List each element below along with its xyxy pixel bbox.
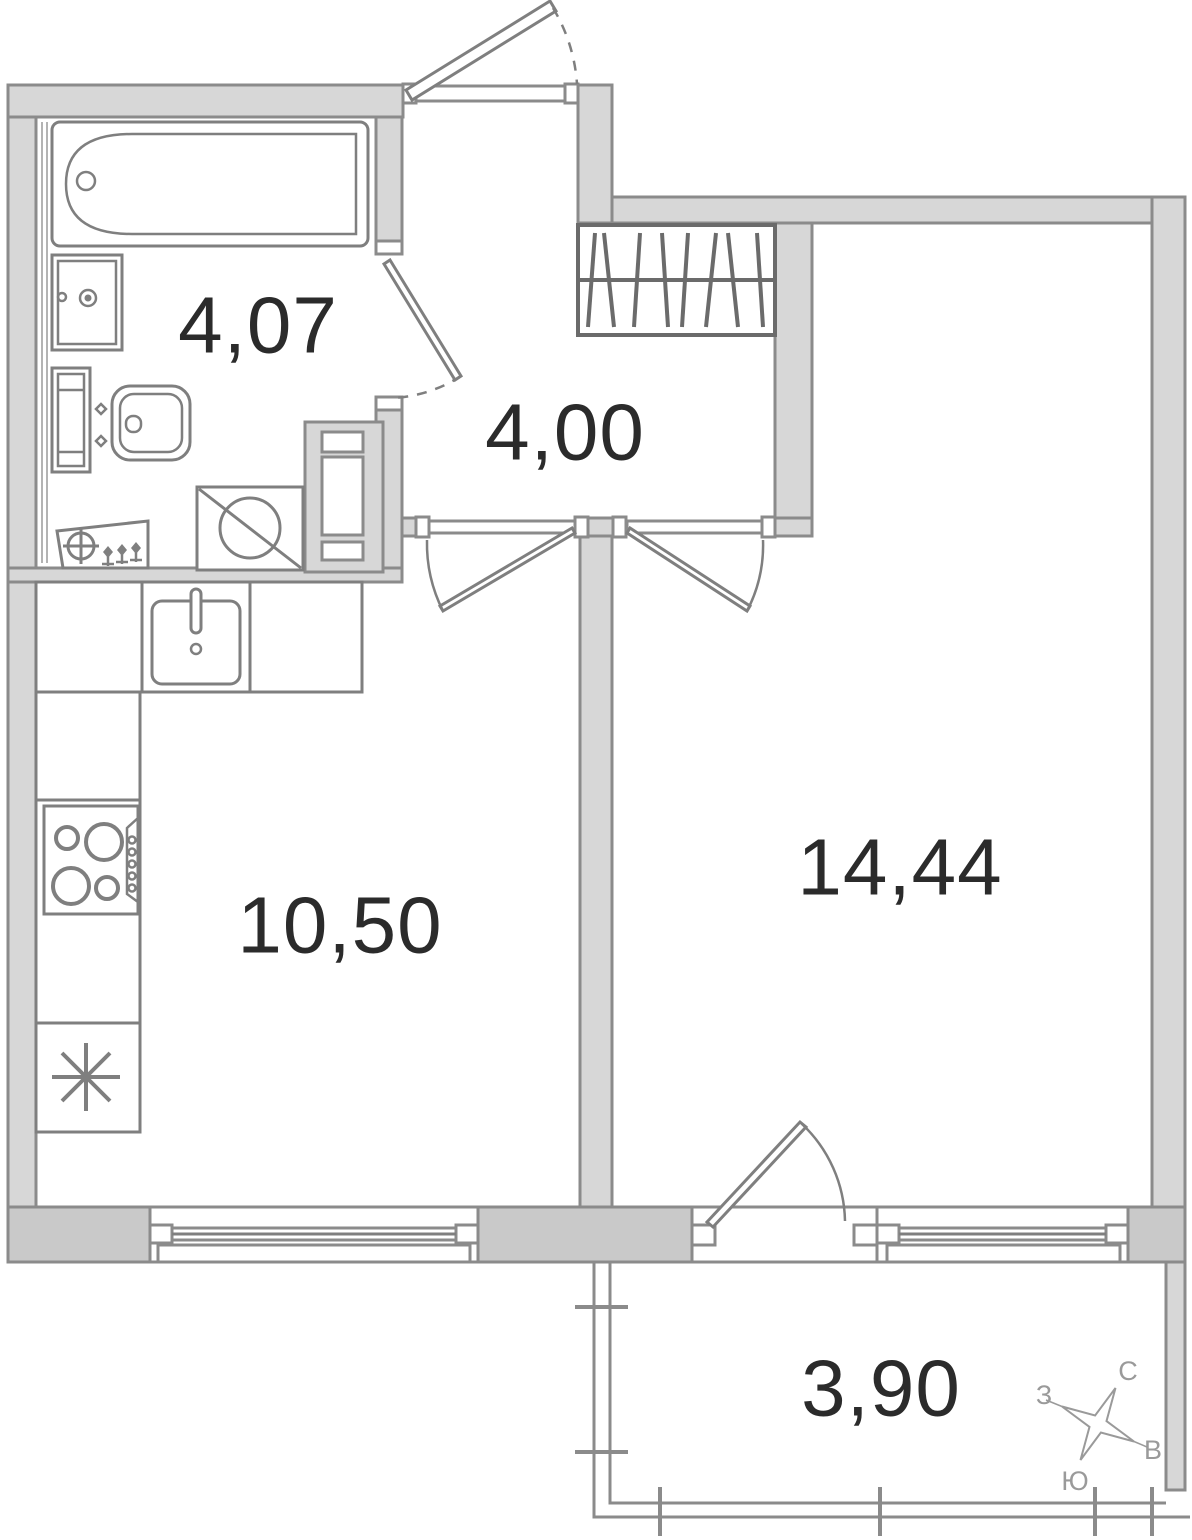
wall-bottom-pier-center <box>478 1207 692 1262</box>
toilet-icon <box>52 368 190 472</box>
wall-balcony-right <box>1166 1262 1185 1490</box>
wall-bathroom-right-upper <box>376 117 402 253</box>
living-room-window-icon <box>877 1207 1128 1262</box>
wall-entry-right <box>578 85 612 223</box>
duct-shaft-panel <box>322 432 363 452</box>
wall-right <box>1152 197 1185 1207</box>
duct-shaft-panel <box>322 542 363 560</box>
compass-star-icon <box>1062 1388 1134 1460</box>
wall-bottom-pier-left <box>8 1207 150 1262</box>
living-room-area-label: 14,44 <box>797 823 1002 912</box>
kitchen-fixtures <box>36 582 362 1132</box>
heated-towel-rail-icon <box>57 521 148 568</box>
kitchen-sink-icon <box>152 589 240 684</box>
kitchen-area-label: 10,50 <box>237 881 442 970</box>
floor-plan-drawing: 4,07 4,00 10,50 14,44 3,90 С З В Ю <box>0 0 1192 1540</box>
washing-machine-icon <box>197 487 303 570</box>
hallway-area-label: 4,00 <box>485 388 645 477</box>
refrigerator-icon <box>52 1043 120 1111</box>
wall-bottom-pier-right <box>1128 1207 1185 1262</box>
compass-south-label: Ю <box>1061 1466 1088 1496</box>
bathtub-icon <box>52 122 368 246</box>
compass-rose: С З В Ю <box>1036 1356 1162 1496</box>
compass-west-label: З <box>1036 1380 1052 1410</box>
wall-kitchen-living-partition <box>580 536 612 1207</box>
entry-door-icon <box>403 1 578 103</box>
stove-icon <box>44 806 138 914</box>
balcony-area-label: 3,90 <box>801 1344 961 1433</box>
compass-north-label: С <box>1118 1356 1138 1386</box>
kitchen-window-icon <box>150 1207 478 1262</box>
wardrobe-icon <box>578 225 775 335</box>
wall-left <box>8 85 36 1207</box>
compass-east-label: В <box>1144 1435 1162 1465</box>
bathroom-door-icon <box>376 241 461 410</box>
living-room-door-icon <box>613 517 775 611</box>
kitchen-door-icon <box>416 517 588 611</box>
duct-shaft-panel <box>322 457 363 535</box>
wall-top-left <box>8 85 403 117</box>
wall-top-living <box>612 197 1185 223</box>
sink-icon <box>52 255 122 350</box>
bathroom-area-label: 4,07 <box>178 281 338 370</box>
wall-hall-living-partition <box>775 223 812 518</box>
floor-plan-page: 4,07 4,00 10,50 14,44 3,90 С З В Ю <box>0 0 1192 1540</box>
